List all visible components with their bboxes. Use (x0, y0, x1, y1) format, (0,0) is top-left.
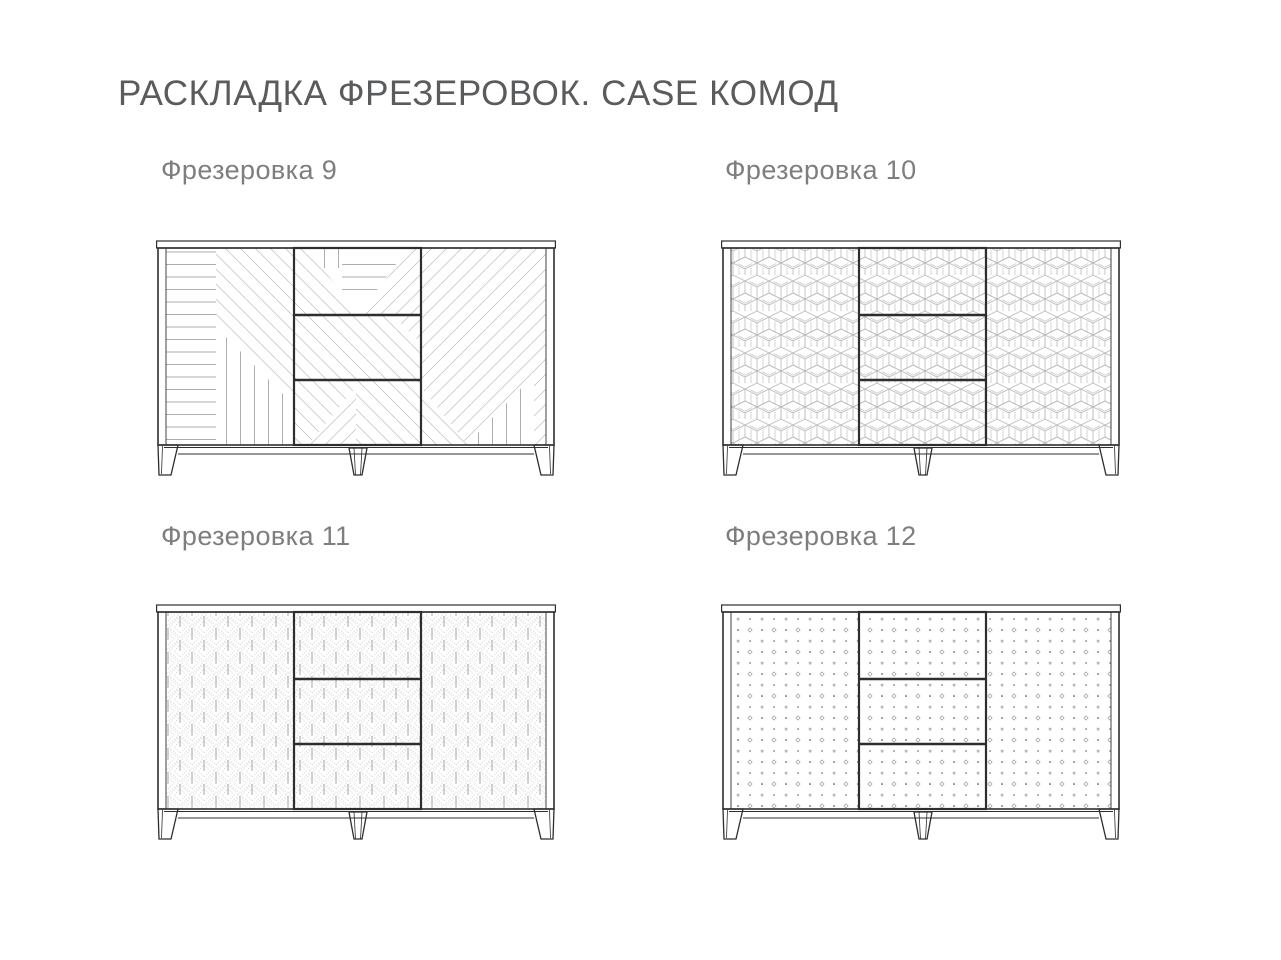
drawing-frezerovka-11 (156, 603, 556, 843)
pattern-fill-12 (731, 612, 1111, 809)
variant-label-9: Фрезеровка 9 (161, 155, 337, 186)
milling-layout-page: РАСКЛАДКА ФРЕЗЕРОВОК. CASE КОМОД Фрезеро… (0, 0, 1281, 960)
page-title: РАСКЛАДКА ФРЕЗЕРОВОК. CASE КОМОД (118, 74, 839, 114)
variant-label-12: Фрезеровка 12 (725, 521, 917, 552)
pattern-fill-9 (166, 248, 546, 445)
drawing-frezerovka-9 (156, 239, 556, 479)
variant-label-11: Фрезеровка 11 (161, 521, 351, 552)
variant-label-10: Фрезеровка 10 (725, 155, 917, 186)
drawing-frezerovka-10 (721, 239, 1121, 479)
drawing-frezerovka-12 (721, 603, 1121, 843)
pattern-fill-11 (166, 612, 546, 809)
pattern-fill-10 (731, 248, 1111, 445)
